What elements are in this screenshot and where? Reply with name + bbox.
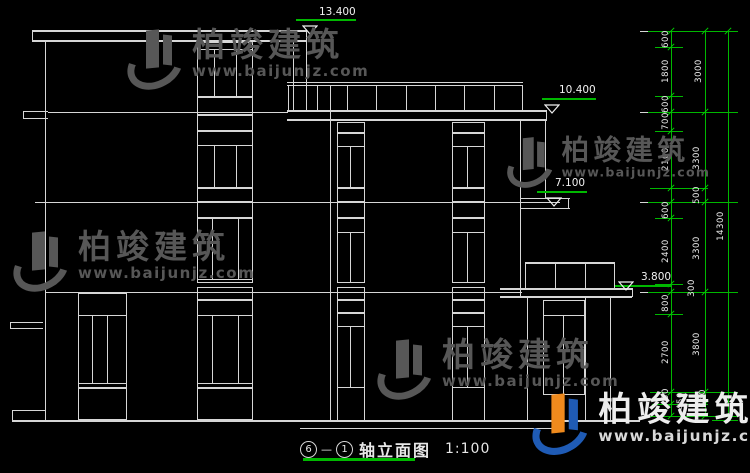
brand-name: 柏竣建筑 [78,230,255,265]
cad-elevation-canvas: 6001800600700210050060024003008002700450… [0,0,750,473]
window-frame [452,202,485,218]
window-frame [197,202,253,218]
window-frame [452,188,485,202]
brand-logo-icon [506,136,555,183]
level-value: 3.800 [641,272,671,283]
dimension-label: 14300 [717,211,726,241]
brand-watermark: 柏竣建筑www.baijunjz.com [506,136,710,183]
window-frame [197,131,253,188]
brand-logo-icon [12,230,70,286]
brand-watermark: 柏竣建筑www.baijunjz.com [12,230,255,286]
brand-watermark: 柏竣建筑www.baijunjz.com [126,28,369,84]
dimension-label: 1800 [662,59,671,83]
dimension-label: 600 [662,30,671,48]
window-frame [337,133,365,188]
wall-line [525,262,615,264]
dimension-label: 600 [662,201,671,219]
brand-watermark: 柏竣建筑www.baijunjz.com [376,338,619,394]
window-frame [197,115,253,131]
brand-name: 柏竣建筑 [598,392,750,427]
window-frame [337,218,365,283]
dimension-label: 700 [662,112,671,130]
brand-url: www.baijunjz.com [561,165,710,179]
wall-line [288,85,289,110]
brand-logo-icon [376,338,434,394]
logo-building-icon [32,231,45,270]
window-frame [197,287,253,300]
dimension-label: 300 [688,279,697,297]
dimension-label: 500 [693,186,702,204]
wall-line [347,85,348,110]
dimension-label: 3000 [695,59,704,83]
wall-line [32,30,33,42]
window-frame [78,293,127,388]
wall-line [494,85,495,110]
logo-building-icon [49,237,58,268]
brand-text: 柏竣建筑www.baijunjz.com [561,136,710,179]
brand-text: 柏竣建筑www.baijunjz.com [442,338,619,389]
dimension-line [671,31,672,416]
wall-line [10,322,43,323]
window-frame [197,97,253,115]
window-frame [197,188,253,202]
axis-bubble-start: 6 [300,441,317,458]
window-frame [337,300,365,313]
wall-line [555,262,556,288]
window-frame [452,122,485,133]
dimension-label: 3300 [693,236,702,260]
window-frame [197,388,253,420]
level-marker-icon [544,99,560,109]
window-frame [78,388,127,420]
level-marker-icon [546,192,562,202]
brand-text: 柏竣建筑www.baijunjz.com [192,28,369,79]
dimension-label: 2700 [662,340,671,364]
axis-bubble-end: 1 [336,441,353,458]
brand-url: www.baijunjz.com [78,265,255,282]
window-frame [337,313,365,388]
window-frame [452,218,485,283]
brand-url: www.baijunjz.com [192,63,369,80]
scale-label: 1:100 [445,441,490,457]
brand-name: 柏竣建筑 [561,136,710,165]
wall-line [364,388,365,420]
logo-building-icon [537,141,545,167]
wall-line [287,110,547,112]
wall-line [10,322,11,329]
wall-line [317,85,318,110]
brand-logo-icon [126,28,184,84]
logo-building-icon [551,393,564,433]
logo-building-icon [396,339,409,378]
window-frame [337,122,365,133]
logo-building-icon [569,399,578,431]
wall-line [376,85,377,110]
level-marker-icon [618,276,634,286]
dimension-label: 2400 [662,239,671,263]
window-frame [337,202,365,218]
wall-line [520,198,570,199]
level-value: 10.400 [559,85,596,96]
wall-line [12,410,45,411]
brand-url: www.baijunjz.com [598,427,750,444]
window-frame [197,300,253,388]
dimension-label: 800 [662,294,671,312]
dimension-label: 3800 [693,332,702,356]
wall-line [10,328,43,329]
level-value: 13.400 [319,7,356,18]
level-underline [537,191,587,193]
window-frame [452,133,485,188]
window-frame [452,300,485,313]
wall-line [525,262,526,288]
dimension-line [705,31,706,416]
wall-line [435,85,436,110]
wall-line [12,410,13,421]
wall-line [585,262,586,288]
wall-line [300,428,560,429]
wall-line [520,208,570,209]
brand-url: www.baijunjz.com [442,373,619,390]
dimension-line [728,31,729,420]
window-frame [337,287,365,300]
brand-text: 柏竣建筑www.baijunjz.com [598,392,750,444]
wall-line [500,296,632,298]
window-frame [337,188,365,202]
axis-dash: — [321,443,332,456]
brand-name: 柏竣建筑 [442,338,619,373]
title-underline [303,458,415,461]
wall-line [464,85,465,110]
dimension-label: 600 [662,95,671,113]
wall-line [406,85,407,110]
wall-line [23,111,24,119]
brand-name: 柏竣建筑 [192,28,369,63]
wall-line [287,119,547,121]
logo-building-icon [413,345,422,376]
wall-line [287,85,523,86]
brand-logo-icon [531,392,590,449]
brand-watermark: 柏竣建筑www.baijunjz.com [531,392,750,449]
logo-building-icon [146,29,159,68]
wall-line [330,85,331,421]
wall-line [522,85,523,110]
window-frame [452,287,485,300]
wall-line [337,388,338,420]
logo-building-icon [523,137,534,170]
logo-building-icon [163,35,172,66]
wall-line [568,198,569,209]
brand-text: 柏竣建筑www.baijunjz.com [78,230,255,281]
